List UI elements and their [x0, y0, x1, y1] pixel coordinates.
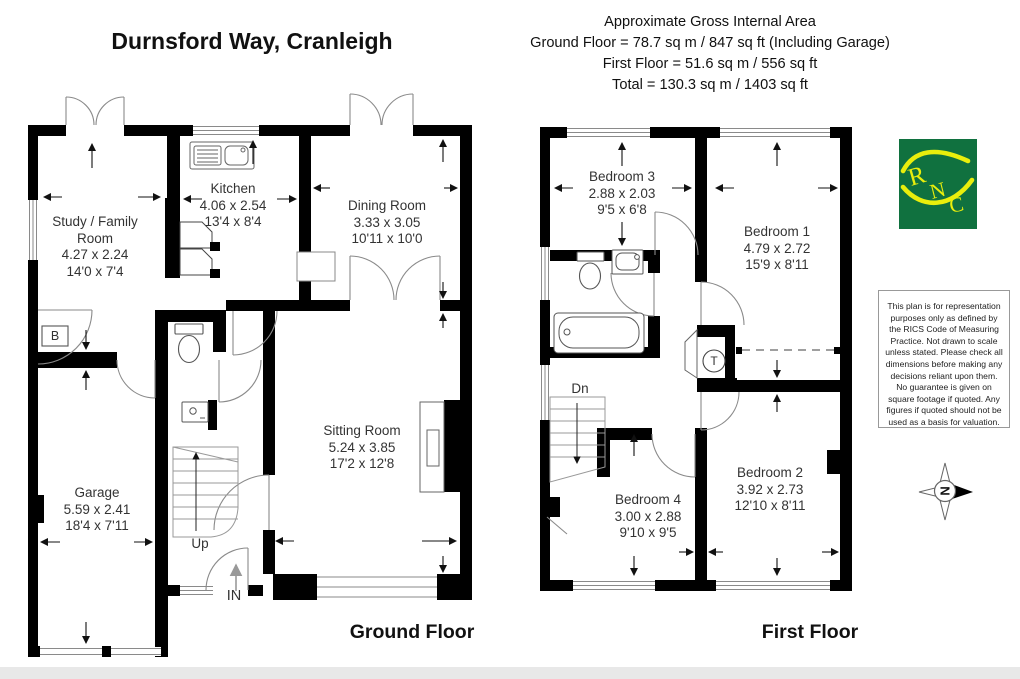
room-label-sitting: Sitting Room 5.24 x 3.85 17'2 x 12'8 — [297, 423, 427, 473]
tank-label: T — [702, 354, 726, 368]
room-label-bedroom3: Bedroom 3 2.88 x 2.03 9'5 x 6'8 — [557, 169, 687, 219]
bathtub-icon — [554, 313, 644, 353]
page-title: Durnsford Way, Cranleigh — [102, 28, 402, 55]
compass-north-letter: N — [938, 486, 953, 495]
bathroom-basin-icon — [612, 250, 643, 274]
room-label-kitchen: Kitchen 4.06 x 2.54 13'4 x 8'4 — [173, 181, 293, 231]
area-summary-line: First Floor = 51.6 sq m / 556 sq ft — [515, 54, 905, 75]
bottom-edge-strip — [0, 667, 1020, 679]
stairs-up-label: Up — [185, 536, 215, 551]
compass-icon: N — [919, 463, 973, 520]
bathroom-toilet-icon — [577, 252, 604, 289]
stairs-down — [550, 397, 605, 482]
area-summary-line: Approximate Gross Internal Area — [515, 12, 905, 33]
floorplan-page: R N C N Durnsford Way, Cranleigh Approxi… — [0, 0, 1020, 679]
rnc-logo: R N C — [899, 139, 977, 229]
stairs-dn-label: Dn — [565, 381, 595, 396]
room-label-garage: Garage 5.59 x 2.41 18'4 x 7'11 — [37, 485, 157, 535]
room-label-bedroom4: Bedroom 4 3.00 x 2.88 9'10 x 9'5 — [583, 492, 713, 542]
room-label-bedroom2: Bedroom 2 3.92 x 2.73 12'10 x 8'11 — [700, 465, 840, 515]
ground-floor-caption: Ground Floor — [312, 621, 512, 644]
wc-basin-icon — [182, 402, 208, 422]
boiler-label: B — [42, 329, 68, 343]
wc-toilet-icon — [175, 324, 203, 363]
room-label-dining: Dining Room 3.33 x 3.05 10'11 x 10'0 — [322, 198, 452, 248]
stairs-up — [173, 447, 238, 537]
area-summary: Approximate Gross Internal Area Ground F… — [515, 12, 905, 96]
entrance-in-label: IN — [219, 588, 249, 604]
disclaimer-box: This plan is for representation purposes… — [878, 290, 1010, 428]
kitchen-sink-icon — [190, 142, 254, 169]
floorplan-drawing: R N C N — [0, 0, 1020, 679]
ground-floor-plan — [28, 94, 472, 657]
serving-hatch — [297, 252, 335, 281]
area-summary-line: Total = 130.3 sq m / 1403 sq ft — [515, 75, 905, 96]
area-summary-line: Ground Floor = 78.7 sq m / 847 sq ft (In… — [515, 33, 905, 54]
first-floor-caption: First Floor — [710, 621, 910, 644]
room-label-bedroom1: Bedroom 1 4.79 x 2.72 15'9 x 8'11 — [712, 224, 842, 274]
room-label-study: Study / Family Room 4.27 x 2.24 14'0 x 7… — [47, 214, 143, 280]
